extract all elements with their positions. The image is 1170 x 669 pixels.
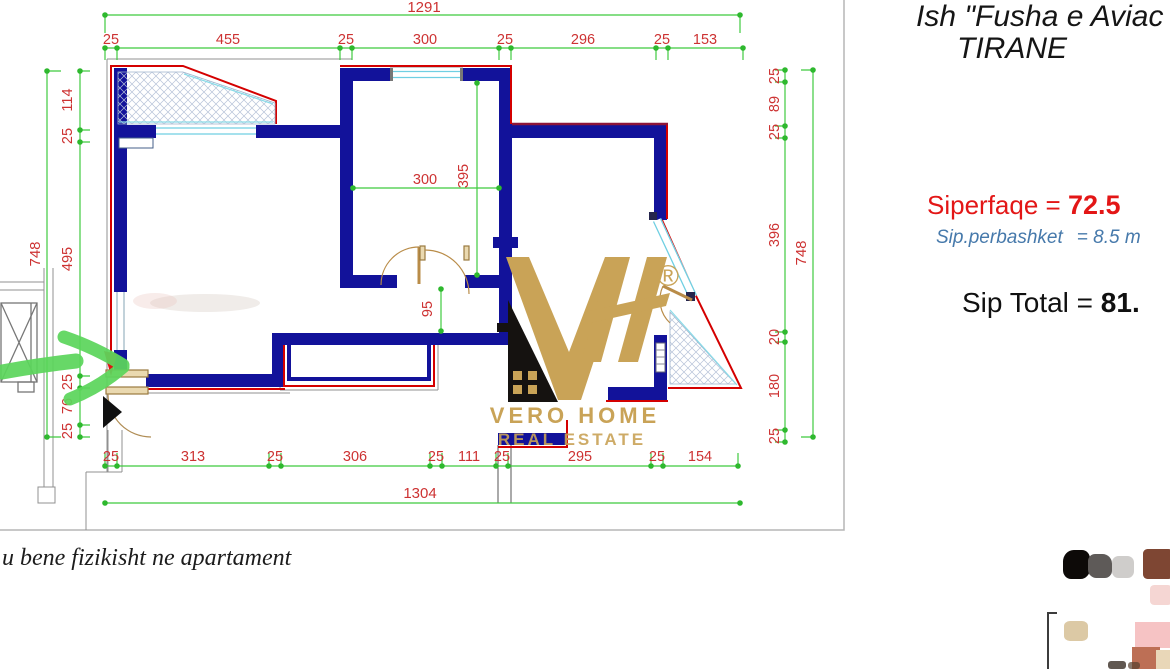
dim-label: 25 (494, 449, 510, 465)
photo-thumbnail-text-fragment (1108, 661, 1126, 669)
balcony-hatch-left (118, 72, 275, 124)
dim-label: 25 (267, 449, 283, 465)
drawing-corner-bracket (1047, 612, 1049, 669)
dim-right: 748 25 89 25 396 20 180 25 (767, 67, 816, 445)
common-area-line: Sip.perbashket= 8.5 m (936, 227, 1141, 249)
radiator (119, 138, 153, 148)
logo-brand-name: VERO HOME (490, 403, 660, 428)
hall-door-arc (425, 250, 469, 294)
dim-label: 296 (571, 32, 595, 48)
window-left-wall (114, 292, 127, 350)
dim-label: 748 (793, 240, 810, 265)
dim-interior: 300 395 95 (350, 80, 502, 334)
dim-left: 748 114 25 495 25 76 25 (27, 68, 90, 440)
dim-label: 300 (413, 172, 437, 188)
drawing-corner-bracket-tick (1047, 612, 1057, 614)
dim-label: 95 (420, 301, 436, 317)
dim-top: 1291 25 455 25 300 25 296 25 153 (102, 0, 746, 60)
location-city: TIRANE (957, 32, 1067, 66)
total-area-line: Sip Total = 81. (962, 287, 1140, 319)
dim-label: 748 (27, 241, 44, 266)
photo-thumbnail-pink (1135, 622, 1170, 648)
dim-label: 25 (767, 428, 783, 444)
erased-label-smudge-2 (133, 293, 177, 309)
dim-label: 495 (60, 247, 76, 271)
logo-tagline: REAL ESTATE (498, 430, 646, 449)
registered-mark: ® (657, 260, 679, 293)
dim-label: 25 (649, 449, 665, 465)
location-title: Ish "Fusha e Aviac (916, 0, 1163, 34)
floor-plan-page: ® VERO HOME REAL ESTATE 1291 25 455 25 3… (0, 0, 1170, 669)
photo-thumbnail-brown (1143, 549, 1170, 579)
total-area-label: Sip Total = (962, 287, 1101, 318)
photo-thumbnail-grey (1088, 554, 1112, 578)
dim-label: 395 (456, 164, 472, 188)
surface-area-line: Siperfaqe = 72.5 (927, 190, 1121, 221)
dim-bottom: 1304 25 313 25 306 25 111 25 295 25 154 (102, 449, 743, 506)
vero-home-logo: ® VERO HOME REAL ESTATE (490, 257, 679, 449)
window-bedroom (393, 68, 460, 81)
dim-label: 300 (413, 32, 437, 48)
dim-label: 295 (568, 449, 592, 465)
dim-label: 25 (767, 68, 783, 84)
dim-label: 25 (428, 449, 444, 465)
photo-thumbnail-lightpink (1150, 585, 1170, 605)
dim-label: 25 (767, 124, 783, 140)
footer-note: u bene fizikisht ne apartament (2, 545, 291, 572)
common-area-label: Sip.perbashket (936, 227, 1063, 248)
dim-label: 114 (60, 88, 76, 111)
window-top-left (156, 125, 256, 138)
dim-label: 313 (181, 449, 205, 465)
dim-label: 25 (497, 32, 513, 48)
dim-label: 1291 (407, 0, 440, 16)
common-area-value: = 8.5 m (1077, 227, 1141, 248)
dim-label: 25 (654, 32, 670, 48)
dim-label: 20 (767, 329, 783, 345)
surface-area-label: Siperfaqe = (927, 190, 1068, 220)
dim-label: 89 (767, 96, 783, 112)
dim-label: 455 (216, 32, 240, 48)
dim-label: 25 (60, 423, 76, 439)
surface-area-value: 72.5 (1068, 190, 1121, 220)
dim-label: 153 (693, 32, 717, 48)
dim-label: 25 (103, 32, 119, 48)
dim-label: 25 (338, 32, 354, 48)
photo-thumbnail-text-fragment-2 (1128, 662, 1140, 669)
dim-label: 154 (688, 449, 712, 465)
photo-thumbnail-lightgrey (1112, 556, 1134, 578)
total-area-value: 81. (1101, 287, 1140, 318)
dim-label: 180 (767, 374, 783, 398)
photo-thumbnail-beige-corner (1156, 650, 1170, 669)
photo-thumbnail-black (1063, 550, 1090, 579)
dim-label: 1304 (403, 485, 436, 502)
dim-label: 25 (103, 449, 119, 465)
dim-label: 396 (767, 223, 783, 247)
dim-label: 25 (60, 128, 76, 144)
dim-label: 306 (343, 449, 367, 465)
photo-thumbnail-beige (1064, 621, 1088, 641)
dim-label: 25 (60, 374, 76, 390)
dim-label: 111 (458, 449, 480, 465)
balcony-hatch-right (670, 310, 737, 385)
